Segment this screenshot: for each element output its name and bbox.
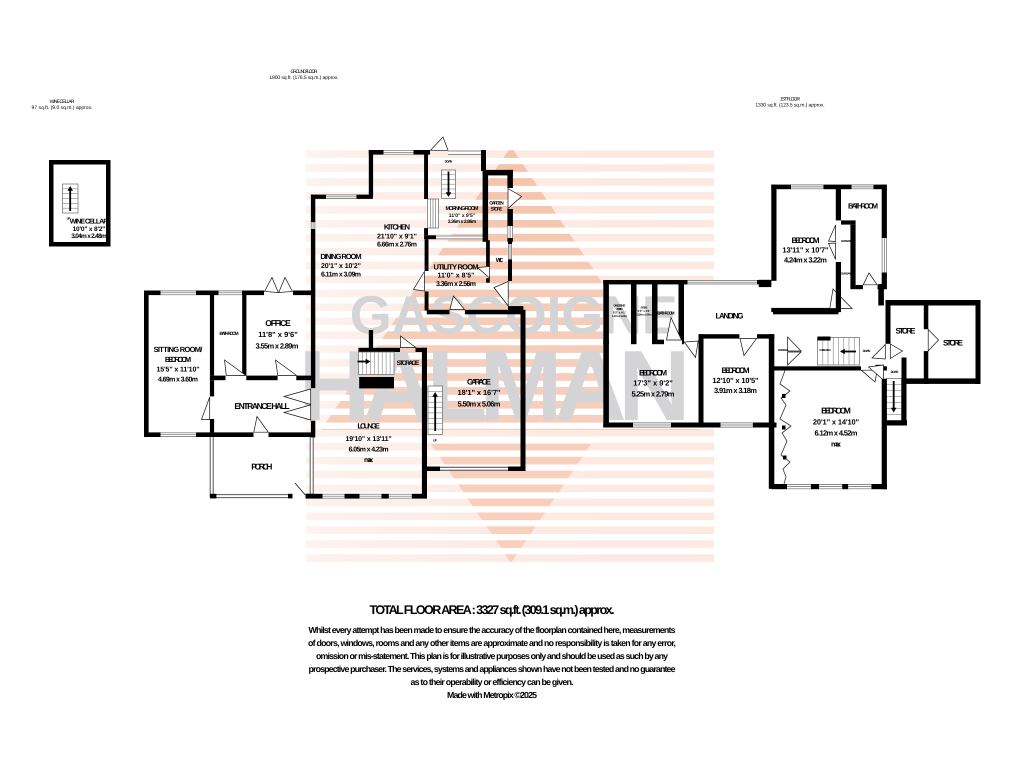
svg-text:13'11" x 10'7": 13'11" x 10'7" xyxy=(782,246,829,255)
svg-text:19'10" x 13'11": 19'10" x 13'11" xyxy=(346,436,392,443)
svg-text:STORE: STORE xyxy=(491,206,504,212)
svg-text:BEDROOM: BEDROOM xyxy=(722,366,750,375)
svg-text:4.69m x 3.60m: 4.69m x 3.60m xyxy=(158,376,198,383)
svg-text:DOWN: DOWN xyxy=(445,160,453,164)
svg-text:CUPBOARD: CUPBOARD xyxy=(819,348,830,352)
svg-text:max: max xyxy=(364,457,373,464)
svg-text:3.04m x 2.48m: 3.04m x 2.48m xyxy=(71,233,107,240)
svg-text:21'10" x 9'1": 21'10" x 9'1" xyxy=(377,234,417,241)
svg-text:as to their operability or eff: as to their operability or efficiency ca… xyxy=(411,677,574,687)
svg-text:5.50m x 5.06m: 5.50m x 5.06m xyxy=(458,400,501,409)
svg-text:6.66m x 2.76m: 6.66m x 2.76m xyxy=(377,242,417,249)
svg-text:4.24m x 3.22m: 4.24m x 3.22m xyxy=(784,256,827,265)
svg-text:3.36m x 2.56m: 3.36m x 2.56m xyxy=(436,281,476,288)
svg-text:97 sq.ft. (9.0 sq.m.) approx.: 97 sq.ft. (9.0 sq.m.) approx. xyxy=(32,105,93,111)
svg-text:6.05m x 4.23m: 6.05m x 4.23m xyxy=(349,447,389,454)
svg-text:WC: WC xyxy=(496,257,504,264)
svg-text:STORE: STORE xyxy=(896,326,917,335)
svg-text:3.91m x 3.18m: 3.91m x 3.18m xyxy=(714,386,757,395)
svg-text:6.12m x 4.52m: 6.12m x 4.52m xyxy=(815,429,858,438)
svg-text:BATHROOM: BATHROOM xyxy=(848,202,878,211)
svg-text:1330 sq.ft. (123.5 sq.m.) appr: 1330 sq.ft. (123.5 sq.m.) approx. xyxy=(755,102,824,108)
svg-text:PORCH: PORCH xyxy=(251,461,272,471)
svg-text:SITTING ROOM/: SITTING ROOM/ xyxy=(154,345,204,354)
svg-text:15'5" x 11'10": 15'5" x 11'10" xyxy=(156,367,199,374)
svg-text:CUPBOARD: CUPBOARD xyxy=(841,239,852,243)
svg-text:20'1" x 10'2": 20'1" x 10'2" xyxy=(321,263,361,270)
svg-text:Whilst every attempt has been: Whilst every attempt has been made to en… xyxy=(309,625,676,635)
svg-text:20'1" x 14'10": 20'1" x 14'10" xyxy=(813,417,860,426)
svg-text:omission or mis-statement. Thi: omission or mis-statement. This plan is … xyxy=(316,651,668,661)
svg-text:DOWN: DOWN xyxy=(863,349,871,353)
svg-text:GARAGE: GARAGE xyxy=(467,377,492,386)
svg-text:UTILITY ROOM: UTILITY ROOM xyxy=(434,262,479,271)
svg-text:CUPBOARD: CUPBOARD xyxy=(841,271,852,275)
svg-text:DOWN: DOWN xyxy=(891,370,899,374)
svg-text:WINE CELLAR: WINE CELLAR xyxy=(70,219,109,226)
svg-text:KITCHEN: KITCHEN xyxy=(384,223,410,232)
svg-text:DINING ROOM: DINING ROOM xyxy=(320,252,361,261)
svg-text:6.11m x 3.09m: 6.11m x 3.09m xyxy=(321,272,361,279)
svg-text:11'8" x 9'6": 11'8" x 9'6" xyxy=(258,330,298,339)
svg-text:3.36m x 2.86m: 3.36m x 2.86m xyxy=(448,219,477,225)
svg-text:17'3" x 9'2": 17'3" x 9'2" xyxy=(633,379,673,388)
svg-text:10'0" x 8'2": 10'0" x 8'2" xyxy=(73,226,106,233)
svg-text:max: max xyxy=(831,439,842,448)
svg-text:Made with Metropix ©2025: Made with Metropix ©2025 xyxy=(447,690,537,700)
svg-text:ENTRANCE HALL: ENTRANCE HALL xyxy=(234,401,289,411)
svg-text:prospective purchaser. The ser: prospective purchaser. The services, sys… xyxy=(308,664,675,674)
svg-text:OFFICE: OFFICE xyxy=(265,318,291,328)
svg-text:1.47m x 1.24m: 1.47m x 1.24m xyxy=(612,314,628,318)
svg-text:18'1" x 16'7": 18'1" x 16'7" xyxy=(458,388,501,397)
svg-text:BATHROOM: BATHROOM xyxy=(219,331,238,337)
svg-text:1.52m x 1.06m: 1.52m x 1.06m xyxy=(636,312,652,316)
svg-text:MORNING ROOM: MORNING ROOM xyxy=(446,206,479,212)
svg-text:BATHROOM: BATHROOM xyxy=(657,310,675,315)
svg-text:1900 sq.ft. (176.5 sq.m.) appr: 1900 sq.ft. (176.5 sq.m.) approx. xyxy=(269,75,338,81)
svg-text:BEDROOM: BEDROOM xyxy=(792,236,820,245)
svg-text:BEDROOM: BEDROOM xyxy=(639,368,667,377)
svg-text:STORAGE: STORAGE xyxy=(397,360,420,367)
svg-text:LOUNGE: LOUNGE xyxy=(357,421,380,430)
svg-text:of doors, windows, rooms and a: of doors, windows, rooms and any other i… xyxy=(308,638,676,648)
svg-text:3.55m x 2.89m: 3.55m x 2.89m xyxy=(256,342,299,351)
svg-text:BEDROOM: BEDROOM xyxy=(821,405,851,415)
svg-text:GARDEN: GARDEN xyxy=(489,200,504,206)
svg-text:12'10" x 10'5": 12'10" x 10'5" xyxy=(712,376,759,385)
svg-text:BEDROOM: BEDROOM xyxy=(165,355,191,364)
svg-text:LANDING: LANDING xyxy=(716,311,744,320)
svg-text:STORE: STORE xyxy=(943,338,964,347)
svg-text:11'0" x 8'5": 11'0" x 8'5" xyxy=(438,273,475,280)
svg-text:5.25m x 2.79m: 5.25m x 2.79m xyxy=(632,390,675,399)
svg-text:TOTAL FLOOR AREA : 3327 sq.ft.: TOTAL FLOOR AREA : 3327 sq.ft. (309.1 sq… xyxy=(370,603,615,617)
